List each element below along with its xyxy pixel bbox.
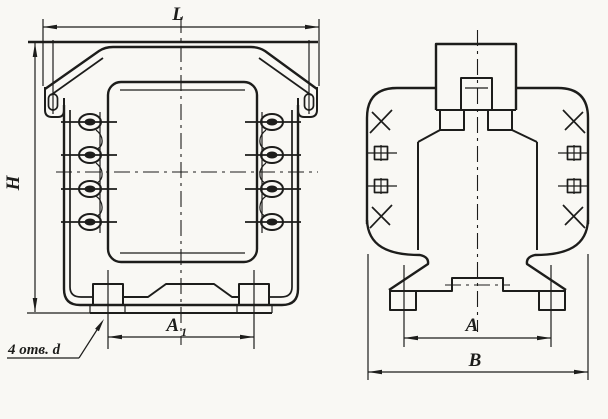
foot-pad-right — [539, 291, 565, 310]
dim-label-A1-subscript: 1 — [181, 325, 187, 339]
stack-foot-right — [488, 110, 512, 130]
rivet-square-ticks — [366, 145, 397, 161]
rivet-square-ticks — [558, 178, 589, 194]
arrowhead — [33, 298, 38, 312]
terminal-lug-center — [267, 219, 278, 226]
bobbin-flange-slope-right — [512, 130, 537, 142]
terminal-lug-center — [85, 119, 96, 126]
terminal-web-curves — [96, 130, 102, 216]
dimension-height: H — [3, 43, 92, 313]
dim-label-A1: A — [165, 315, 179, 336]
rivet-cross-icon — [563, 205, 585, 228]
cover-shell-inner-left — [70, 110, 93, 297]
terminal-lug-center — [267, 119, 278, 126]
arrowhead — [368, 370, 382, 375]
arrowhead — [95, 319, 104, 331]
rivet-cross-icon — [370, 205, 392, 228]
cover-shoulder-inner-left — [51, 58, 103, 95]
foot-pad-left — [390, 291, 416, 310]
rivet-symbols-right — [558, 110, 589, 228]
arrowhead — [574, 370, 588, 375]
cover-shoulder-inner-right — [259, 58, 311, 95]
terminal-lug-center — [85, 186, 96, 193]
terminal-lug-center — [267, 152, 278, 159]
arrowhead — [33, 43, 38, 57]
terminal-lug-center — [85, 219, 96, 226]
arrowhead — [404, 336, 418, 341]
terminal-lug-center — [85, 152, 96, 159]
rivet-square-ticks — [558, 145, 589, 161]
arrowhead — [537, 336, 551, 341]
bobbin-flange-slope-left — [418, 130, 440, 142]
stack-window — [461, 78, 492, 110]
dimension-length: L — [43, 4, 319, 86]
terminal-lug-center — [267, 186, 278, 193]
transformer-technical-drawing: L H A 1 A B 4 отв. d — [0, 0, 608, 419]
shell-outline-right — [516, 88, 588, 224]
cover-shell-inner-right — [269, 110, 292, 297]
terminal-web-curves — [260, 130, 266, 216]
holes-note-label: 4 отв. d — [7, 342, 61, 358]
rivet-symbols-left — [366, 110, 397, 228]
holes-note: 4 отв. d — [7, 319, 104, 358]
shell-outline-left — [367, 88, 436, 224]
rivet-cross-icon — [370, 110, 392, 133]
dim-label-L: L — [171, 4, 184, 25]
rivet-cross-icon — [563, 110, 585, 133]
arrowhead — [108, 335, 122, 340]
rivet-square-ticks — [366, 178, 397, 194]
front-view — [28, 17, 318, 345]
drawing-canvas: L H A 1 A B 4 отв. d — [0, 0, 608, 419]
dim-label-B: B — [468, 350, 482, 371]
arrowhead — [43, 25, 57, 30]
arrowhead — [305, 25, 319, 30]
arrowhead — [240, 335, 254, 340]
dim-label-A: A — [465, 315, 479, 336]
side-view — [366, 30, 589, 332]
dim-label-H: H — [3, 174, 24, 191]
stack-foot-left — [440, 110, 464, 130]
